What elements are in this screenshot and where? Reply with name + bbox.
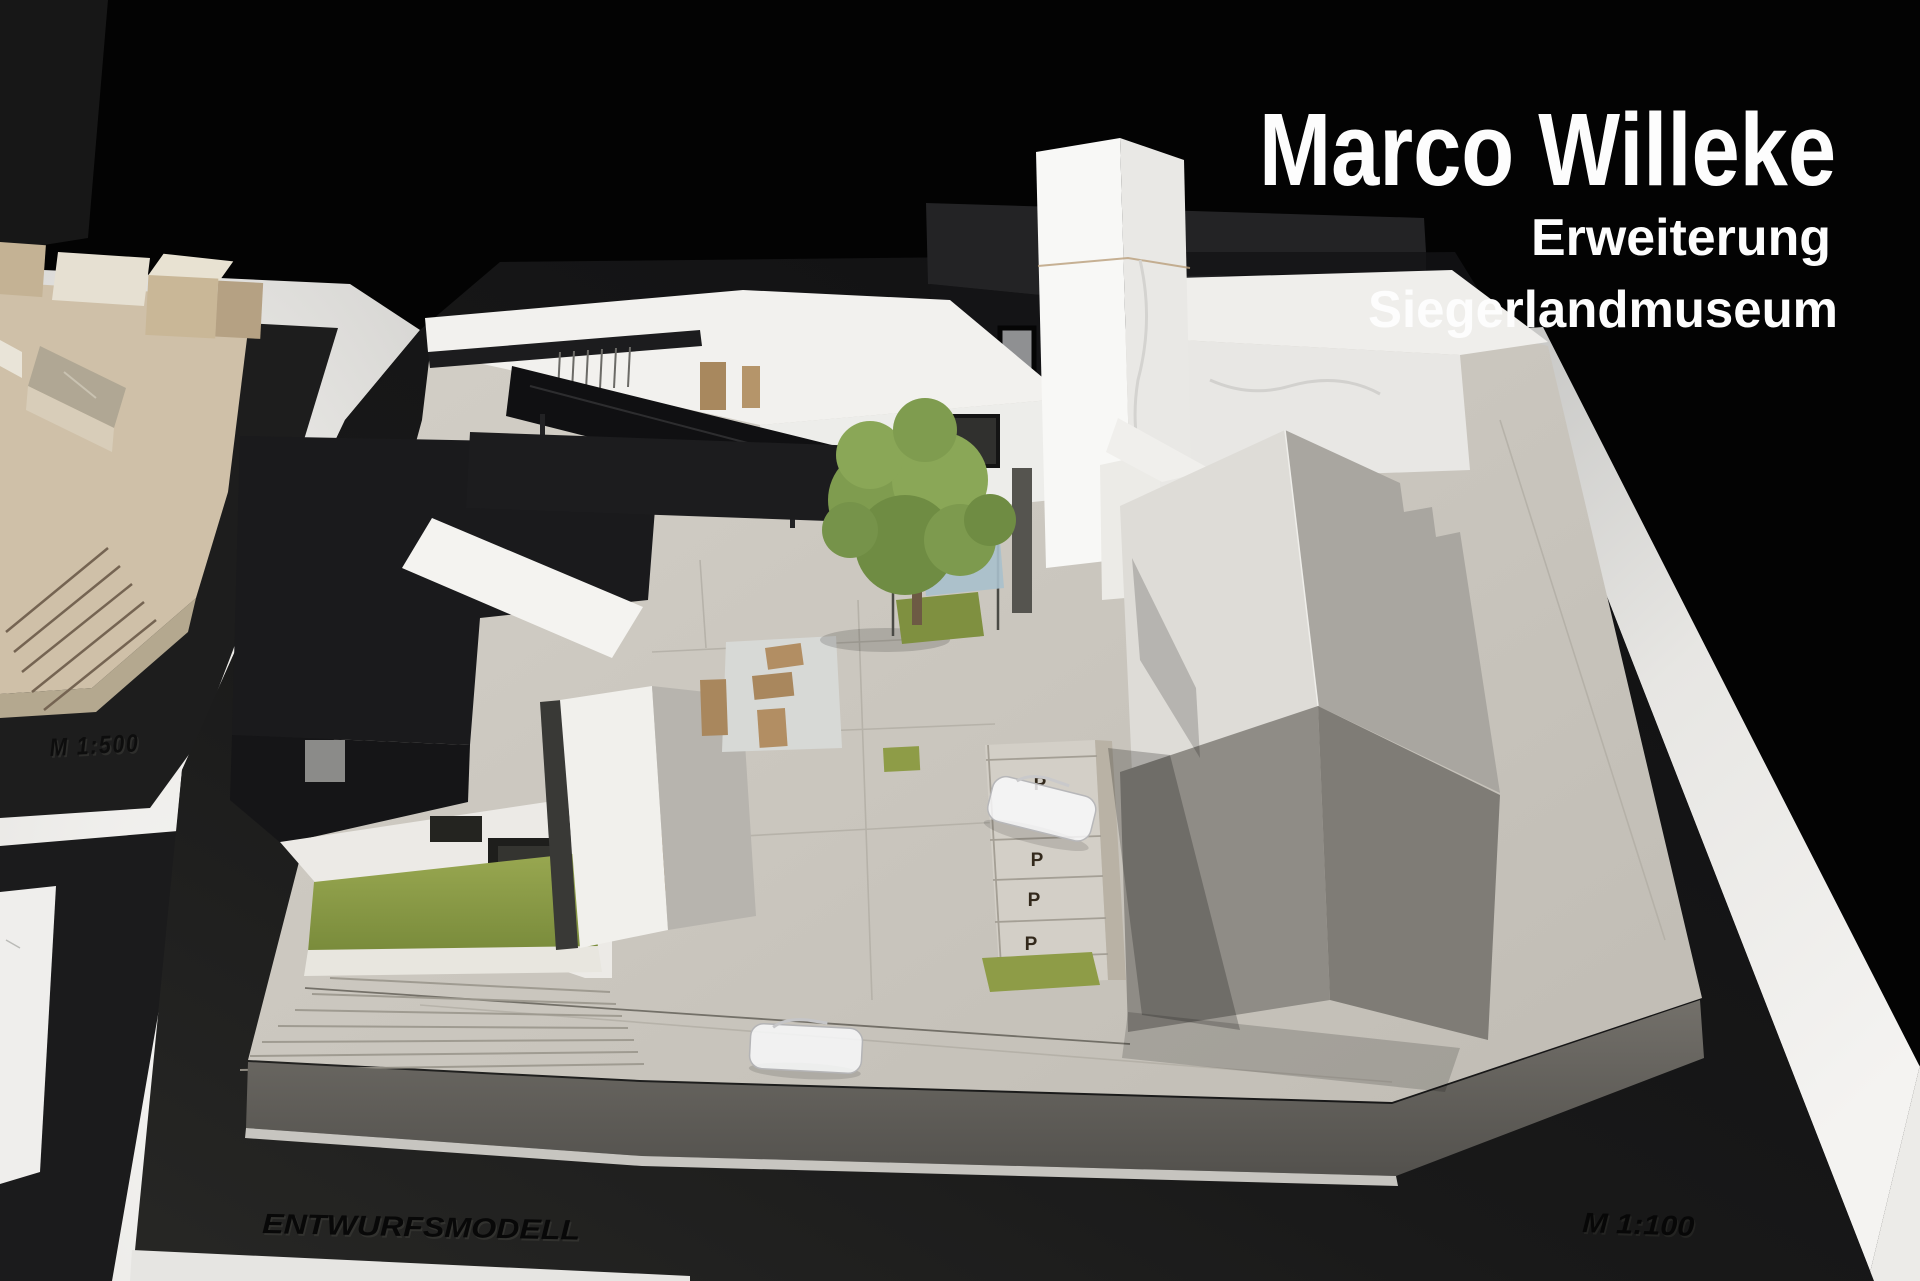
furniture-box — [757, 708, 788, 748]
furniture-box — [752, 672, 794, 700]
author-name-title: Marco Willeke — [1259, 92, 1836, 207]
planting-square — [883, 746, 920, 772]
model-name-label-group: ENTWURFSMODELL ENTWURFSMODELL — [262, 1208, 582, 1248]
parking-p-mark: P — [1031, 850, 1044, 871]
context-model-scale-label-group: M 1:500 M 1:500 — [49, 729, 142, 764]
wood-door-panel — [700, 362, 726, 410]
foliage-clump — [822, 502, 878, 558]
parking-p-mark: P — [1028, 890, 1041, 911]
wood-door-panel-small — [742, 366, 760, 408]
photo-of-architecture-model: M 1:500 M 1:500 ENTWURFSMODELL ENTWURFSM… — [0, 0, 1920, 1281]
foliage-clump — [964, 494, 1016, 546]
fascia-window — [305, 740, 345, 782]
context-scale-label: M 1:500 — [49, 729, 140, 762]
project-subtitle-line2: Siegerlandmuseum — [1368, 281, 1838, 339]
courtyard-column — [1012, 468, 1032, 613]
parking-p-mark: P — [1025, 934, 1038, 955]
moss-planter-bed — [896, 592, 984, 644]
context-building-small — [0, 242, 46, 297]
parking-end-grass — [982, 952, 1100, 992]
context-building-side — [215, 281, 263, 339]
black-roof-upper-arm — [466, 432, 862, 522]
model-scale-label-group: M 1:100 M 1:100 — [1582, 1207, 1697, 1244]
context-building-white-slab — [52, 252, 150, 306]
car-body — [749, 1023, 863, 1074]
model-photo-scene: M 1:500 M 1:500 ENTWURFSMODELL ENTWURFSM… — [0, 0, 1920, 1281]
context-building-front — [145, 275, 218, 339]
model-scale-label: M 1:100 — [1582, 1207, 1695, 1242]
house-window-wide — [430, 816, 482, 842]
project-subtitle-line1: Erweiterung — [1531, 209, 1831, 267]
garden-white-curb — [304, 946, 602, 976]
foliage-clump — [893, 398, 957, 462]
furniture-box — [700, 679, 728, 736]
